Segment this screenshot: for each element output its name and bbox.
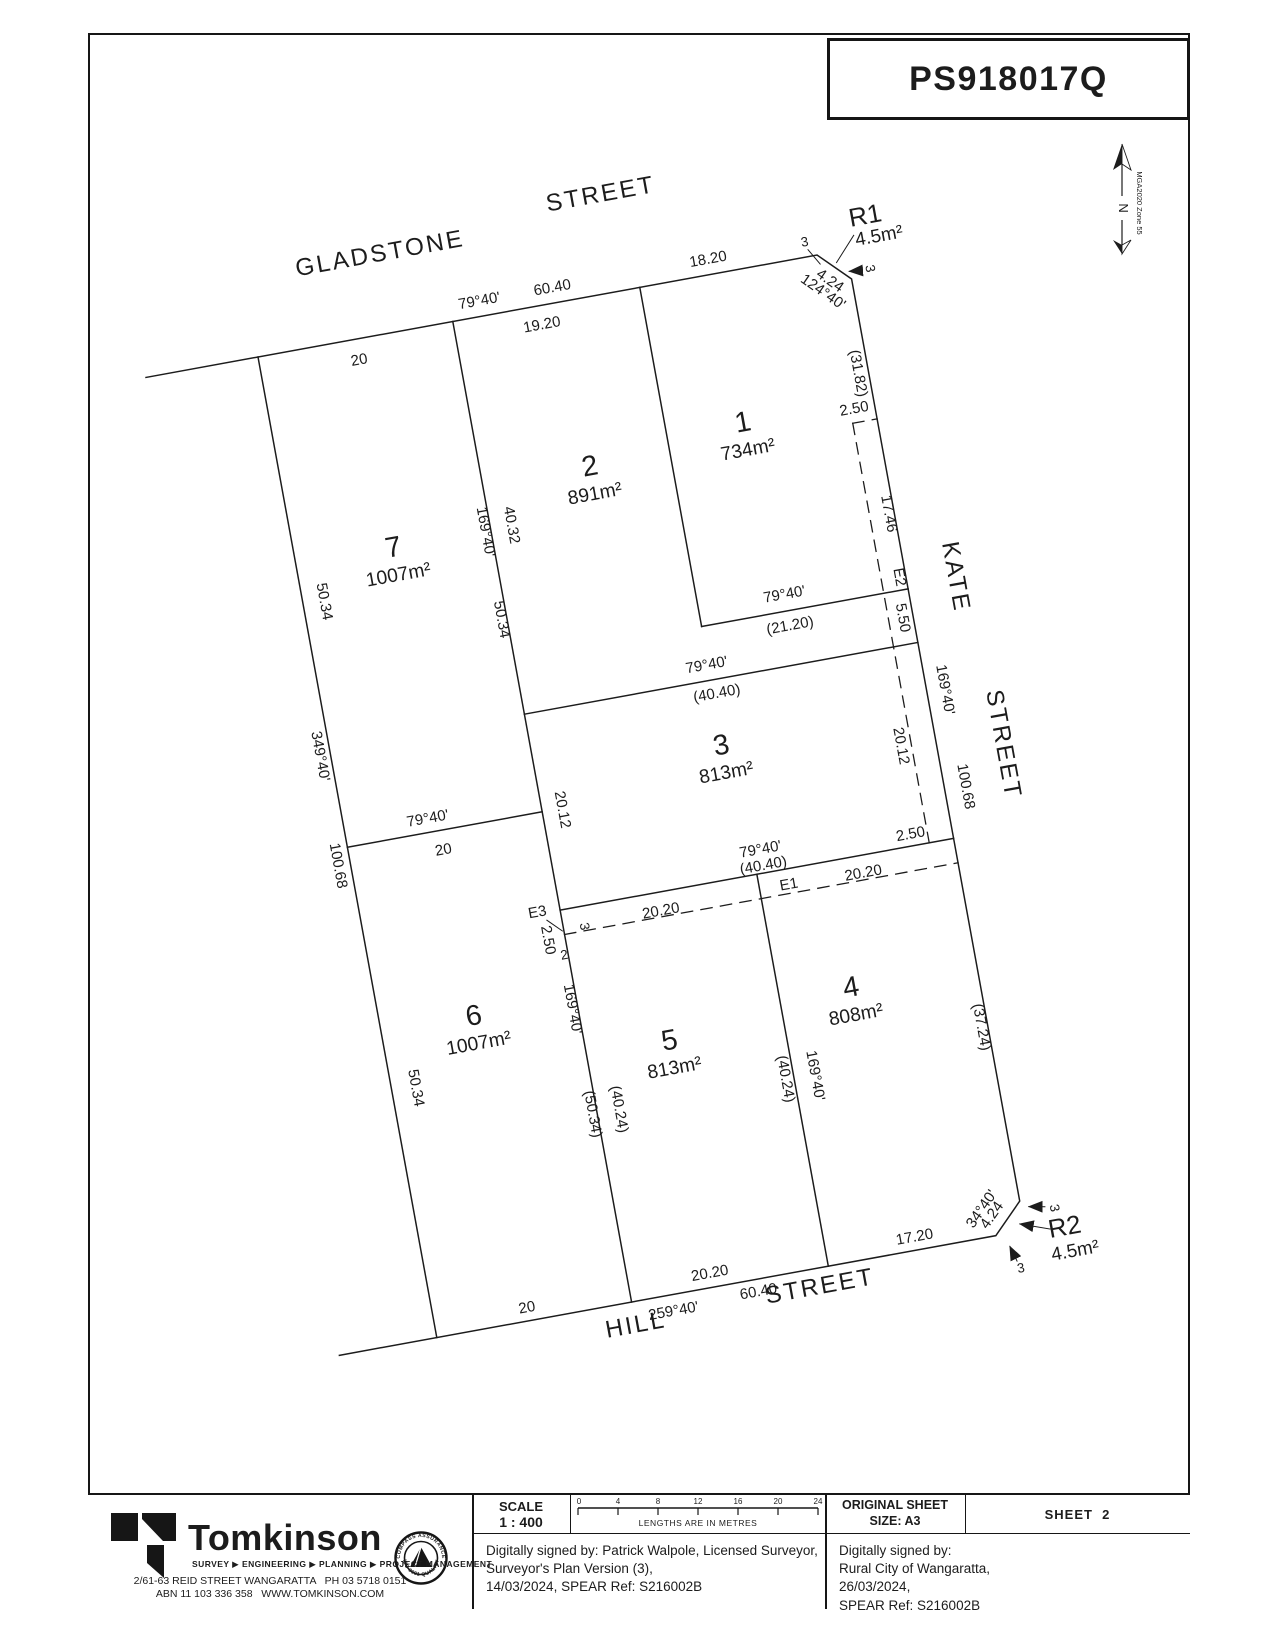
- lot-4-number: 4: [840, 970, 861, 1004]
- signature-line: 14/03/2024, SPEAR Ref: S216002B: [486, 1578, 825, 1596]
- boundary-lot2-lot1: [640, 287, 702, 626]
- leader-line: [1020, 1219, 1050, 1234]
- dim-e1-east: 20.20: [843, 861, 883, 884]
- dim-e1-west: 20.20: [641, 899, 681, 922]
- dim-div65-bearing: 169°40': [560, 983, 586, 1036]
- lot-6-area: 1007m²: [445, 1027, 514, 1059]
- dim-lot2-frontage: 19.20: [522, 313, 562, 336]
- scale-bar: 0 4 8 12 16 20 24 LENGTHS ARE IN METRES: [570, 1495, 825, 1533]
- signature-line: 26/03/2024,: [839, 1578, 1190, 1596]
- leader-line: [1010, 1246, 1017, 1262]
- dim-lot6-east: (50.34): [580, 1089, 605, 1139]
- dim-top-total: 60.40: [532, 276, 572, 299]
- scale-tick: 20: [774, 1497, 783, 1506]
- scale-cell: SCALE 1 : 400: [472, 1495, 570, 1533]
- boundary-block-outline: [146, 250, 1025, 1358]
- dim-r1-side-east: 3: [862, 263, 878, 273]
- dim-lot2-kate: 5.50: [892, 602, 914, 634]
- dim-lot4-frontage: 17.20: [895, 1225, 935, 1248]
- plan-number-box: PS918017Q: [827, 38, 1190, 120]
- dim-lot5-frontage: 20.20: [690, 1262, 730, 1285]
- dim-lot2-west: 40.32: [500, 505, 523, 545]
- lot-1-area: 734m²: [719, 435, 777, 466]
- dim-mid-bearing: 79°40': [405, 806, 450, 830]
- street-gladstone-type: STREET: [544, 171, 658, 217]
- sheet-number: SHEET 2: [1045, 1507, 1111, 1522]
- dim-lot5-west: (40.24): [606, 1084, 631, 1134]
- dim-lot3-north: (40.40): [692, 681, 742, 706]
- sheet-number-cell: SHEET 2: [965, 1495, 1190, 1533]
- lot-2-number: 2: [579, 449, 600, 483]
- company-tagline: SURVEY ▶ ENGINEERING ▶ PLANNING ▶ PROJEC…: [192, 1559, 492, 1570]
- original-sheet-cell: ORIGINAL SHEET SIZE: A3: [825, 1495, 965, 1533]
- dim-e2-upper: 17.46: [877, 494, 900, 534]
- street-kate: KATE: [936, 539, 975, 614]
- scale-tick: 0: [577, 1497, 582, 1506]
- dim-lot3-west: 20.12: [551, 790, 574, 830]
- signature-line: Surveyor's Plan Version (3),: [486, 1560, 825, 1578]
- dim-top-bearing: 79°40': [457, 289, 502, 313]
- scale-tick: 16: [734, 1497, 743, 1506]
- plan-number: PS918017Q: [909, 60, 1108, 99]
- scale-bar-cell: 0 4 8 12 16 20 24 LENGTHS ARE IN METRES: [570, 1495, 825, 1533]
- surveyor-signature: Digitally signed by: Patrick Walpole, Li…: [472, 1533, 825, 1609]
- dim-r2-side-bottom: 3: [1016, 1260, 1026, 1276]
- scale-tick: 8: [656, 1497, 661, 1506]
- lot-2-area: 891m²: [566, 479, 624, 510]
- dim-r2-side-east: 3: [1047, 1203, 1063, 1213]
- dim-west-upper: 50.34: [313, 581, 336, 621]
- street-gladstone: GLADSTONE: [293, 225, 466, 282]
- easement-e2-hook: [853, 419, 877, 423]
- signature-line: Rural City of Wangaratta,: [839, 1560, 1190, 1578]
- dim-lot4-east: (37.24): [969, 1002, 994, 1052]
- dim-mid-length: 20: [434, 840, 454, 860]
- company-abn-web: ABN 11 103 336 358 WWW.TOMKINSON.COM: [88, 1588, 452, 1600]
- lot-7-area: 1007m²: [364, 559, 433, 591]
- dim-lot1-south: (21.20): [765, 613, 815, 638]
- company-name: Tomkinson: [188, 1517, 382, 1559]
- dim-e2-offset: 2.50: [838, 398, 870, 420]
- lot-3-area: 813m²: [698, 758, 756, 789]
- lot-7-number: 7: [383, 530, 404, 564]
- street-hill-type: STREET: [763, 1263, 877, 1309]
- signature-line: Digitally signed by:: [839, 1542, 1190, 1560]
- lot-5-area: 813m²: [646, 1053, 704, 1084]
- dim-west-lower: 50.34: [404, 1068, 427, 1108]
- title-block: COMPASS ASSURANCE ISO 9001 QUALITY Tomki…: [88, 1493, 1190, 1607]
- north-arrow: N MGA2020 Zone 55: [1113, 144, 1144, 254]
- leader-line: [849, 269, 862, 273]
- scale-ratio: 1 : 400: [499, 1514, 543, 1530]
- street-kate-type: STREET: [980, 688, 1026, 802]
- surveyor-branding: COMPASS ASSURANCE ISO 9001 QUALITY Tomki…: [88, 1495, 472, 1609]
- plan-labels: GLADSTONE STREET KATE STREET HILL STREET…: [217, 125, 1111, 1384]
- leader-line: [832, 235, 858, 262]
- dim-lot1-kate: (31.82): [846, 348, 871, 398]
- dim-west-bearing: 349°40': [307, 730, 333, 783]
- north-label: N: [1116, 203, 1131, 212]
- survey-plan-sheet: GLADSTONE STREET KATE STREET HILL STREET…: [0, 0, 1275, 1650]
- lot-1-number: 1: [732, 405, 753, 439]
- scale-tick: 12: [694, 1497, 703, 1506]
- easement-e3-label: E3: [527, 902, 548, 922]
- lot-5-number: 5: [659, 1023, 680, 1057]
- dim-lot5-east: (40.24): [773, 1054, 798, 1104]
- scale-tick: 4: [616, 1497, 621, 1506]
- dim-lot7-frontage: 20: [349, 350, 369, 370]
- plan-drawing: GLADSTONE STREET KATE STREET HILL STREET…: [0, 0, 1275, 1650]
- dim-lot6-frontage: 20: [517, 1298, 537, 1318]
- easement-e2-line: [853, 423, 929, 843]
- scale-tick: 24: [814, 1497, 823, 1506]
- dim-e1-offset-east: 2.50: [895, 823, 927, 845]
- dim-kate-bearing: 169°40': [932, 663, 958, 716]
- signature-line: SPEAR Ref: S216002B: [839, 1597, 1190, 1615]
- dim-kate-total: 100.68: [953, 762, 978, 810]
- easement-e2-label: E2: [889, 567, 909, 588]
- dim-div54-bearing: 169°40': [802, 1049, 828, 1102]
- lot-4-area: 808m²: [827, 1000, 885, 1031]
- north-datum: MGA2020 Zone 55: [1135, 171, 1144, 234]
- lot-boundaries: [144, 233, 1055, 1387]
- dim-r1-side-top: 3: [800, 234, 810, 250]
- dim-e3-offset: 2.50: [537, 924, 559, 956]
- dim-lot7-east: 50.34: [490, 599, 513, 639]
- dim-bottom-bearing: 259°40': [647, 1298, 700, 1324]
- lot-6-number: 6: [463, 999, 484, 1033]
- dim-lot1-frontage: 18.20: [688, 248, 728, 271]
- original-sheet-line1: ORIGINAL SHEET: [842, 1498, 948, 1514]
- dim-e2-lower: 20.12: [889, 726, 912, 766]
- signature-line: Digitally signed by: Patrick Walpole, Li…: [486, 1542, 825, 1560]
- dim-lot1-south-bearing: 79°40': [762, 582, 807, 606]
- north-arrowhead-icon: [1113, 144, 1122, 170]
- dim-lot7-east-bearing: 169°40': [473, 505, 499, 558]
- easement-e1-label: E1: [778, 875, 799, 895]
- original-sheet-line2: SIZE: A3: [870, 1514, 921, 1530]
- dim-lot3-north-bearing: 79°40': [684, 653, 729, 677]
- scale-label: SCALE: [499, 1499, 543, 1514]
- leader-line: [1029, 1204, 1045, 1210]
- council-signature: Digitally signed by: Rural City of Wanga…: [825, 1533, 1190, 1609]
- lot-3-number: 3: [711, 728, 732, 762]
- company-address: 2/61-63 REID STREET WANGARATTA PH 03 571…: [88, 1575, 452, 1587]
- scale-units: LENGTHS ARE IN METRES: [639, 1518, 758, 1528]
